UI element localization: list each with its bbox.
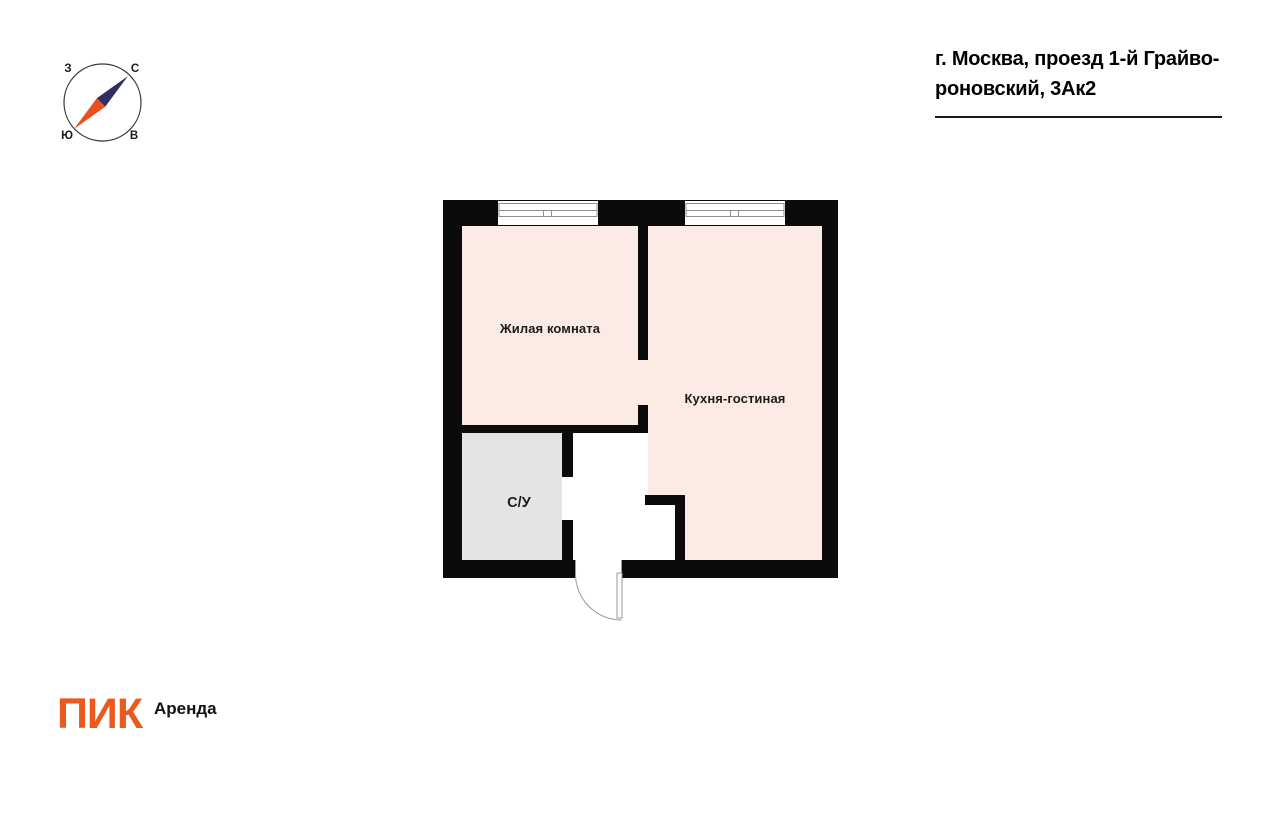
- room-passage-opening: [638, 360, 648, 405]
- wall-bathroom-right-lower: [562, 520, 573, 560]
- wall-kitchen-notch-top: [645, 495, 685, 505]
- compass-label-north: С: [131, 63, 139, 75]
- wall-bathroom-right-upper: [562, 433, 573, 477]
- wall-kitchen-notch-side: [675, 505, 685, 560]
- address-line-1: г. Москва, проезд 1-й Грайво-: [935, 44, 1235, 74]
- wall-divider-upper: [638, 220, 648, 360]
- address-header: г. Москва, проезд 1-й Грайво- роновский,…: [935, 44, 1235, 104]
- floor-plan: Жилая комната Кухня-гостиная С/У: [443, 200, 838, 625]
- room-label-bathroom: С/У: [507, 495, 532, 511]
- compass-rose: З С Ю В: [55, 55, 150, 150]
- wall-hall-top: [462, 425, 648, 433]
- header-divider: [935, 116, 1222, 118]
- window-2: [685, 201, 785, 225]
- wall-left: [443, 200, 462, 578]
- wall-bottom: [443, 560, 838, 578]
- logo-suffix-arenda: Аренда: [154, 700, 217, 717]
- wall-right: [822, 200, 838, 578]
- window-1: [498, 201, 598, 225]
- door-panel: [617, 573, 622, 618]
- room-label-kitchen: Кухня-гостиная: [685, 391, 786, 406]
- door-swing-arc: [576, 574, 622, 620]
- pik-logo: ПИК: [57, 693, 142, 736]
- compass-label-south: Ю: [61, 130, 73, 142]
- entrance-door: [575, 560, 622, 620]
- address-line-2: роновский, 3Ак2: [935, 74, 1235, 104]
- room-label-living: Жилая комната: [499, 321, 601, 336]
- compass-label-west: З: [64, 63, 71, 75]
- compass-label-east: В: [130, 130, 138, 142]
